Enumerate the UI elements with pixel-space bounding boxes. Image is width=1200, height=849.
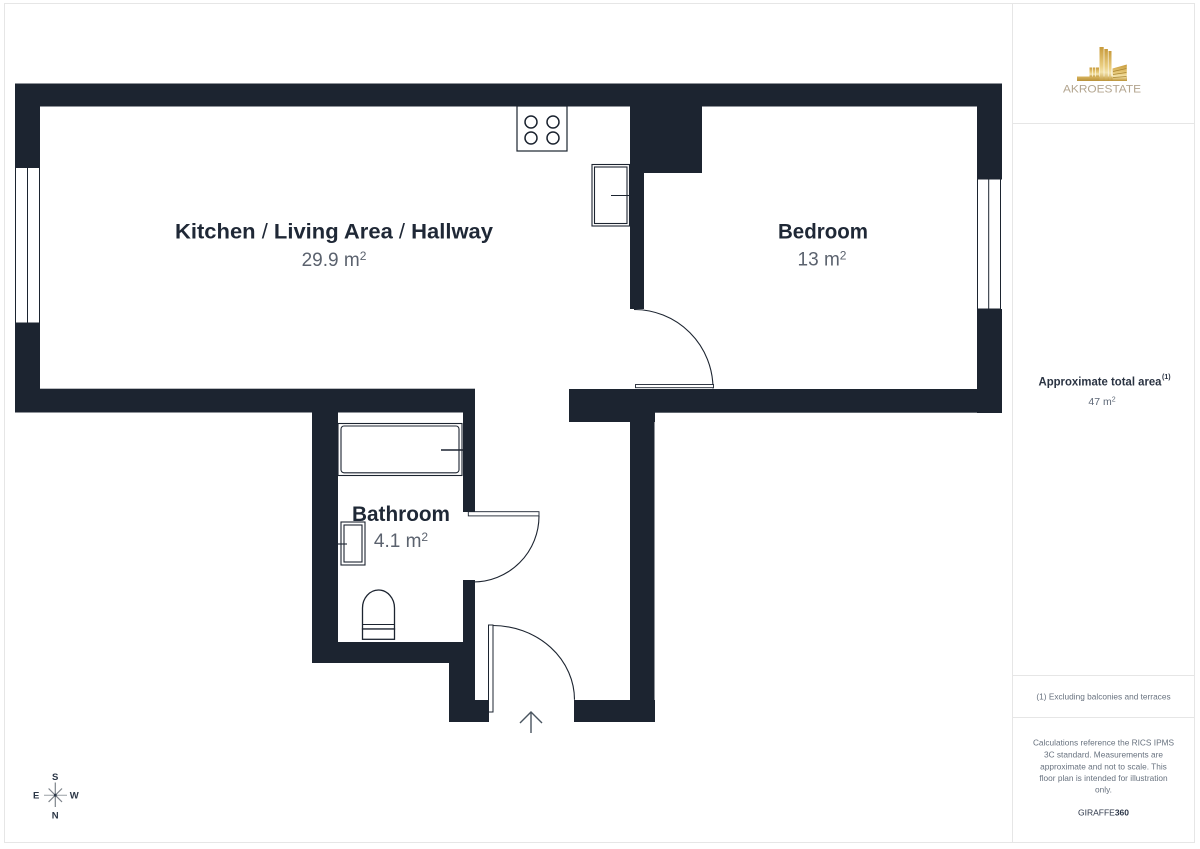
svg-text:floor plan is intended for ill: floor plan is intended for illustration bbox=[1039, 773, 1168, 783]
svg-text:29.9 m2: 29.9 m2 bbox=[302, 249, 367, 271]
svg-text:E: E bbox=[33, 791, 39, 802]
svg-text:W: W bbox=[70, 791, 79, 802]
svg-text:47 m2: 47 m2 bbox=[1088, 396, 1115, 408]
svg-text:S: S bbox=[52, 772, 58, 783]
svg-text:Approximate total area: Approximate total area bbox=[1039, 375, 1162, 389]
svg-text:Bathroom: Bathroom bbox=[352, 503, 450, 526]
svg-text:3C standard. Measurements are: 3C standard. Measurements are bbox=[1044, 750, 1163, 760]
svg-text:GIRAFFE360: GIRAFFE360 bbox=[1078, 808, 1129, 818]
svg-text:Calculations reference the RIC: Calculations reference the RICS IPMS bbox=[1033, 738, 1175, 748]
svg-text:only.: only. bbox=[1095, 785, 1112, 795]
svg-text:approximate and not to scale.: approximate and not to scale. This bbox=[1040, 762, 1167, 772]
svg-text:Kitchen / Living Area / Hallwa: Kitchen / Living Area / Hallway bbox=[175, 221, 493, 244]
svg-text:(1): (1) bbox=[1162, 374, 1171, 381]
svg-text:(1) Excluding balconies and te: (1) Excluding balconies and terraces bbox=[1036, 692, 1170, 702]
svg-text:Bedroom: Bedroom bbox=[778, 221, 868, 244]
svg-text:13 m2: 13 m2 bbox=[798, 249, 847, 271]
svg-text:AKROESTATE: AKROESTATE bbox=[1063, 84, 1141, 96]
svg-text:N: N bbox=[52, 811, 59, 822]
svg-text:4.1 m2: 4.1 m2 bbox=[374, 530, 429, 552]
